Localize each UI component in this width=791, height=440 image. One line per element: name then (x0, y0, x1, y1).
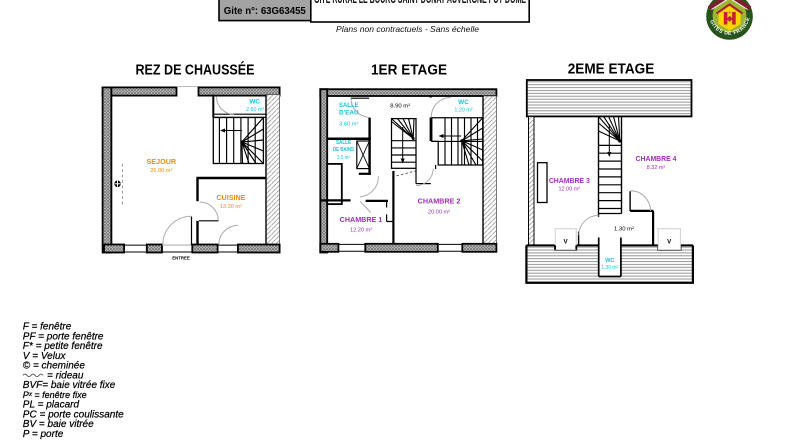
svg-text:1ER ETAGE: 1ER ETAGE (371, 63, 447, 79)
svg-text:WC: WC (249, 99, 260, 106)
svg-text:CHAMBRE 2: CHAMBRE 2 (418, 196, 461, 205)
svg-text:CHAMBRE 4: CHAMBRE 4 (636, 156, 677, 163)
svg-text:13.30 m²: 13.30 m² (220, 204, 242, 210)
svg-text:3.60 m²: 3.60 m² (339, 122, 358, 128)
svg-text:SALLE: SALLE (336, 140, 351, 146)
svg-text:3.5 m²: 3.5 m² (337, 155, 350, 161)
svg-text:Gite n°: 63G63455: Gite n°: 63G63455 (224, 6, 306, 17)
svg-text:GITE RURAL LE BOURG SAINT DONA: GITE RURAL LE BOURG SAINT DONAT AUVERGNE… (314, 0, 526, 6)
svg-text:P = porte: P = porte (23, 429, 64, 440)
svg-text:DE BAINS: DE BAINS (333, 147, 354, 153)
svg-text:ENTREE: ENTREE (172, 256, 190, 262)
svg-text:1.30 m²: 1.30 m² (601, 265, 618, 271)
svg-text:CHAMBRE 3: CHAMBRE 3 (549, 178, 590, 185)
svg-text:1.30 m²: 1.30 m² (614, 227, 634, 233)
svg-text:12.00 m²: 12.00 m² (558, 186, 580, 192)
svg-text:SALLE: SALLE (339, 103, 359, 109)
svg-text:SEJOUR: SEJOUR (147, 157, 177, 166)
svg-text:Pˣ = fenêtre fixe: Pˣ = fenêtre fixe (23, 390, 87, 400)
svg-text:CUISINE: CUISINE (216, 193, 245, 202)
svg-text:REZ DE CHAUSSÉE: REZ DE CHAUSSÉE (136, 62, 255, 79)
svg-text:12.20 m²: 12.20 m² (350, 228, 372, 234)
svg-text:CHAMBRE 1: CHAMBRE 1 (340, 215, 383, 224)
svg-text:WC: WC (458, 99, 469, 106)
svg-text:20.00 m²: 20.00 m² (428, 210, 450, 216)
svg-text:26.00 m²: 26.00 m² (150, 168, 172, 174)
svg-text:2.60 m²: 2.60 m² (246, 107, 264, 113)
svg-text:8.90 m²: 8.90 m² (390, 104, 410, 110)
svg-text:WC: WC (605, 258, 614, 264)
svg-text:Plans non contractuels - Sans: Plans non contractuels - Sans échelle (336, 24, 479, 34)
svg-text:1.20 m²: 1.20 m² (454, 107, 472, 113)
svg-text:2EME ETAGE: 2EME ETAGE (568, 62, 655, 78)
svg-text:8.32 m²: 8.32 m² (647, 165, 666, 171)
svg-text:D'EAU: D'EAU (339, 111, 359, 117)
